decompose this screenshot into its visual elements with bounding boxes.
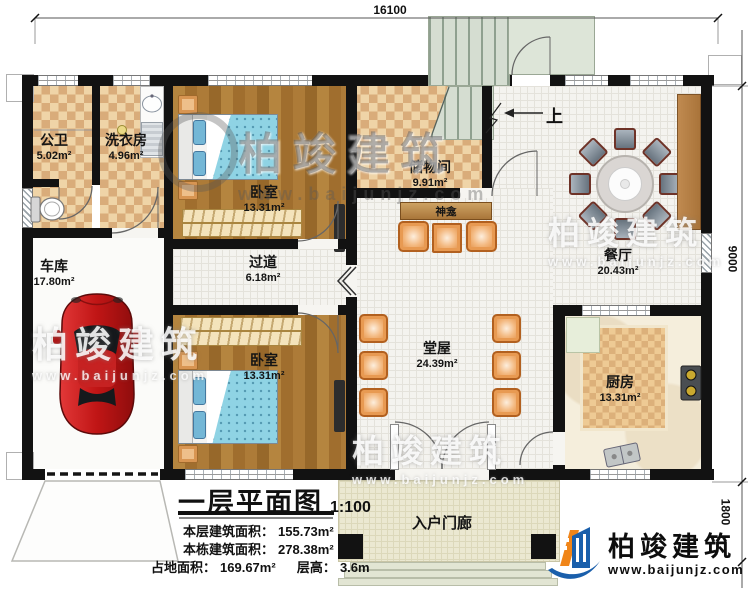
dining-table-center [620, 179, 630, 189]
window [185, 469, 293, 480]
wall-segment [164, 86, 173, 238]
window [565, 75, 608, 86]
wall-segment [92, 86, 100, 185]
entry-door-leaf [487, 424, 496, 470]
room-label-laundry: 洗衣房 4.96m² [105, 131, 147, 163]
door-opening [112, 228, 158, 238]
brand-website: www.baijunjz.com [608, 562, 744, 577]
hall-chair [359, 388, 388, 417]
stair-landing [508, 16, 595, 75]
hall-chair [492, 388, 521, 417]
altar-table: 神龛 [400, 202, 492, 220]
passage-opening [346, 265, 357, 297]
window [113, 75, 150, 86]
window [630, 75, 683, 86]
window [701, 233, 712, 273]
brand-logo-icon [546, 524, 602, 586]
kitchen-counter [566, 317, 600, 353]
total-area-line: 本栋建筑面积：278.38m² [183, 539, 334, 558]
brand-name: 柏竣建筑 [608, 533, 744, 561]
nightstand [178, 181, 198, 200]
bed-pillow [193, 151, 206, 176]
entry-door-leaf [390, 424, 399, 470]
porch-step [350, 562, 546, 570]
door-opening [298, 239, 338, 249]
tea-table [432, 223, 462, 253]
window [208, 75, 312, 86]
title-underline [178, 511, 334, 515]
stairs-outdoor [428, 16, 510, 86]
hall-chair [359, 314, 388, 343]
nightstand [178, 351, 198, 370]
window [22, 188, 33, 228]
door-opening [512, 75, 550, 86]
wall-segment [33, 179, 59, 187]
room-label-storage: 储物间 9.91m² [409, 158, 451, 190]
stairs-up-label: 上 [546, 102, 563, 127]
sideboard [677, 94, 701, 230]
door-opening [553, 432, 565, 465]
plan-scale: 1:100 [330, 499, 371, 517]
land-area-line: 占地面积：169.67m² 层高：3.6m [151, 557, 370, 576]
window [38, 75, 78, 86]
entry-door-opening [395, 469, 489, 480]
room-label-porch: 入户门廊 [412, 514, 472, 534]
kitchen-pass-through-window [582, 305, 650, 316]
bed-pillow [193, 120, 206, 145]
floor-area-line: 本层建筑面积：155.73m² [183, 521, 334, 540]
bed-headboard [179, 115, 193, 179]
wall-segment [482, 86, 492, 188]
room-label-dining: 餐厅 20.43m² [598, 246, 639, 278]
hall-chair [359, 351, 388, 380]
wall-segment [701, 86, 712, 480]
dining-chair [614, 128, 636, 150]
door-opening [460, 188, 492, 198]
porch-step [344, 570, 552, 578]
hall-chair [492, 314, 521, 343]
door-opening [298, 305, 338, 315]
window [590, 469, 650, 480]
dimension-right-upper-label: 9000 [725, 243, 739, 276]
wall-segment [164, 238, 173, 469]
bed-pillow [193, 377, 206, 405]
floor-plan-canvas: 神龛 [0, 0, 750, 597]
bed [178, 114, 278, 180]
room-label-garage: 车库 17.80m² [34, 257, 75, 289]
dining-chair [614, 218, 636, 240]
armchair [398, 221, 429, 252]
title-underline-thin [179, 517, 333, 519]
room-label-bedroom-bottom: 卧室 13.31m² [244, 351, 285, 383]
driveway [12, 481, 178, 561]
armchair [466, 221, 497, 252]
room-label-bedroom-top: 卧室 13.31m² [244, 183, 285, 215]
bed-headboard [179, 371, 193, 443]
room-label-hall: 堂屋 24.39m² [417, 339, 458, 371]
wardrobe [180, 317, 302, 346]
dimension-top-label: 16100 [355, 3, 425, 17]
hall-chair [492, 351, 521, 380]
nightstand [178, 95, 198, 114]
shrine-label: 神龛 [436, 204, 457, 219]
porch-pillar [338, 534, 363, 559]
bed-pillow [193, 411, 206, 439]
room-label-kitchen: 厨房 13.31m² [600, 373, 641, 405]
room-label-bathroom: 公卫 5.02m² [37, 131, 72, 163]
dining-chair [569, 173, 591, 195]
garage-door-opening [45, 469, 160, 480]
tv-cabinet [334, 380, 345, 432]
porch-step [338, 578, 558, 586]
nightstand [178, 445, 198, 463]
wall-segment [22, 86, 33, 480]
room-label-corridor: 过道 6.18m² [246, 253, 281, 285]
brand-logo: 柏竣建筑 www.baijunjz.com [546, 524, 744, 586]
